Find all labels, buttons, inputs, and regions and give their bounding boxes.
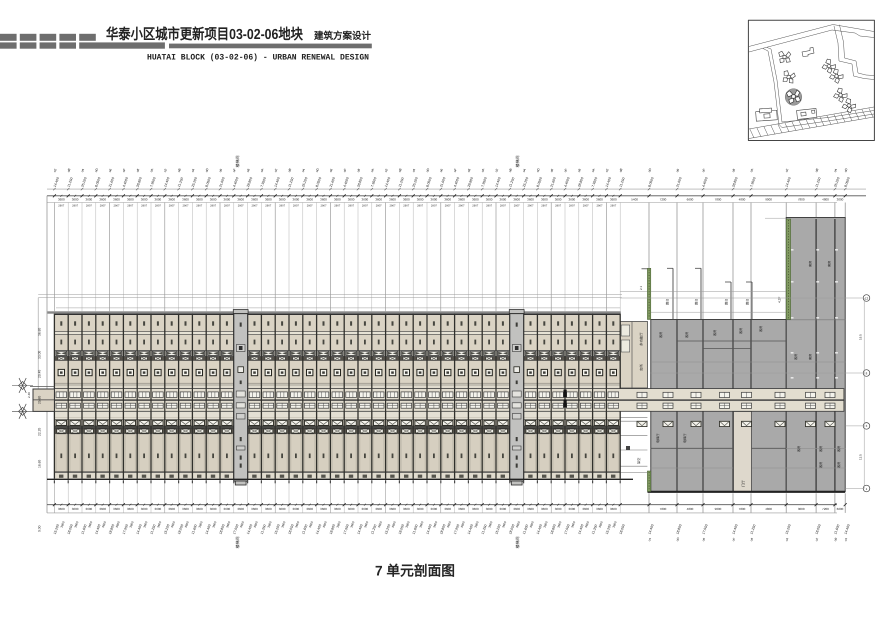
svg-text:7800: 7800	[739, 507, 746, 511]
svg-text:2.1: 2.1	[639, 285, 643, 290]
svg-text:3600: 3600	[141, 198, 148, 202]
svg-text:3600: 3600	[155, 507, 162, 511]
svg-text:3600: 3600	[610, 198, 617, 202]
svg-text:3600: 3600	[389, 198, 396, 202]
svg-text:3600: 3600	[444, 507, 451, 511]
svg-text:客房: 客房	[713, 330, 717, 336]
svg-text:3600: 3600	[362, 507, 369, 511]
svg-text:3600: 3600	[279, 198, 286, 202]
svg-text:3600: 3600	[320, 198, 327, 202]
svg-text:3600: 3600	[472, 198, 479, 202]
svg-text:客房: 客房	[837, 462, 841, 468]
svg-text:2907: 2907	[610, 205, 616, 208]
svg-text:7200: 7200	[660, 198, 667, 202]
svg-text:3600: 3600	[127, 507, 134, 511]
svg-text:2907: 2907	[86, 205, 92, 208]
svg-text:3600: 3600	[431, 507, 438, 511]
svg-text:3600: 3600	[265, 198, 272, 202]
svg-text:3600: 3600	[500, 198, 507, 202]
svg-text:2907: 2907	[72, 205, 78, 208]
svg-text:3600: 3600	[293, 507, 300, 511]
svg-text:2907: 2907	[307, 205, 313, 208]
svg-text:客房: 客房	[809, 354, 813, 360]
svg-text:4800: 4800	[687, 507, 694, 511]
svg-text:3600: 3600	[541, 198, 548, 202]
svg-text:7200: 7200	[822, 507, 829, 511]
svg-text:3600: 3600	[86, 198, 93, 202]
svg-text:2907: 2907	[141, 205, 147, 208]
svg-text:楼梯间: 楼梯间	[515, 156, 520, 168]
svg-text:2907: 2907	[238, 205, 244, 208]
svg-text:29.40: 29.40	[38, 370, 42, 378]
svg-text:3600: 3600	[362, 198, 369, 202]
svg-text:2907: 2907	[569, 205, 575, 208]
svg-text:3600: 3600	[72, 507, 79, 511]
svg-text:楼梯间: 楼梯间	[515, 537, 520, 549]
svg-text:3600: 3600	[458, 198, 465, 202]
svg-text:2907: 2907	[472, 205, 478, 208]
svg-text:3600: 3600	[375, 507, 382, 511]
svg-text:3600: 3600	[431, 198, 438, 202]
svg-text:3600: 3600	[486, 198, 493, 202]
svg-text:架空: 架空	[637, 458, 641, 464]
svg-text:2907: 2907	[114, 205, 120, 208]
svg-text:2907: 2907	[334, 205, 340, 208]
svg-text:2907: 2907	[445, 205, 451, 208]
svg-text:2907: 2907	[196, 205, 202, 208]
svg-text:3600: 3600	[513, 198, 520, 202]
svg-text:3600: 3600	[168, 198, 175, 202]
svg-text:建筑方案设计: 建筑方案设计	[313, 30, 371, 42]
svg-text:3600: 3600	[375, 198, 382, 202]
svg-text:2907: 2907	[321, 205, 327, 208]
svg-text:2907: 2907	[348, 205, 354, 208]
svg-text:3600: 3600	[113, 507, 120, 511]
svg-text:3600: 3600	[141, 507, 148, 511]
svg-text:多功能厅: 多功能厅	[640, 332, 644, 346]
svg-text:3600: 3600	[251, 507, 258, 511]
svg-text:3600: 3600	[417, 198, 424, 202]
svg-text:客房: 客房	[794, 354, 798, 360]
svg-text:7800: 7800	[798, 198, 805, 202]
svg-text:3600: 3600	[417, 507, 424, 511]
svg-text:客房: 客房	[685, 332, 689, 338]
svg-text:露台: 露台	[746, 299, 750, 305]
svg-text:3600: 3600	[444, 198, 451, 202]
svg-text:2.40: 2.40	[27, 392, 31, 398]
svg-text:门厅: 门厅	[742, 480, 746, 487]
svg-text:3600: 3600	[582, 507, 589, 511]
svg-text:25.80: 25.80	[38, 396, 42, 404]
svg-text:3600: 3600	[293, 198, 300, 202]
svg-text:2907: 2907	[459, 205, 465, 208]
svg-text:4.2F: 4.2F	[778, 297, 782, 303]
svg-text:2907: 2907	[362, 205, 368, 208]
svg-text:客房: 客房	[797, 446, 801, 452]
svg-text:3600: 3600	[458, 507, 465, 511]
svg-text:客房: 客房	[659, 332, 663, 338]
svg-text:3600: 3600	[569, 507, 576, 511]
svg-text:22.20: 22.20	[38, 428, 42, 436]
svg-text:3600: 3600	[555, 507, 562, 511]
svg-text:3600: 3600	[224, 507, 231, 511]
svg-text:0.00: 0.00	[38, 525, 42, 532]
svg-text:2907: 2907	[224, 205, 230, 208]
svg-text:3600: 3600	[210, 507, 217, 511]
svg-text:3600: 3600	[196, 507, 203, 511]
svg-text:客房: 客房	[819, 462, 823, 468]
svg-text:2907: 2907	[127, 205, 133, 208]
svg-text:3600: 3600	[58, 198, 65, 202]
svg-text:9000: 9000	[715, 507, 722, 511]
svg-text:楼梯间: 楼梯间	[235, 537, 240, 549]
svg-text:3600: 3600	[265, 507, 272, 511]
svg-text:2907: 2907	[58, 205, 64, 208]
svg-text:3600: 3600	[472, 507, 479, 511]
svg-text:7800: 7800	[715, 198, 722, 202]
svg-text:3600: 3600	[168, 507, 175, 511]
svg-text:3600: 3600	[127, 198, 134, 202]
svg-text:33.00: 33.00	[38, 351, 42, 359]
svg-text:客房: 客房	[828, 261, 832, 267]
svg-text:3600: 3600	[155, 198, 162, 202]
svg-text:18.60: 18.60	[38, 460, 42, 468]
svg-text:3600: 3600	[320, 507, 327, 511]
svg-text:3600: 3600	[334, 198, 341, 202]
svg-text:3600: 3600	[113, 198, 120, 202]
svg-text:3000: 3000	[837, 198, 844, 202]
svg-text:客房: 客房	[819, 446, 823, 452]
svg-text:电梯厅: 电梯厅	[656, 433, 660, 443]
svg-text:3600: 3600	[596, 198, 603, 202]
svg-text:12: 12	[865, 296, 869, 300]
svg-text:3600: 3600	[182, 198, 189, 202]
svg-text:2907: 2907	[390, 205, 396, 208]
svg-text:3600: 3600	[555, 198, 562, 202]
svg-text:3600: 3600	[596, 507, 603, 511]
svg-text:2907: 2907	[265, 205, 271, 208]
svg-text:2907: 2907	[514, 205, 520, 208]
svg-text:HUATAI BLOCK (03-02-06) - UR: HUATAI BLOCK (03-02-06) - URBAN RENEWAL …	[147, 52, 369, 62]
svg-text:2907: 2907	[431, 205, 437, 208]
svg-text:2907: 2907	[417, 205, 423, 208]
svg-text:7 单元剖面图: 7 单元剖面图	[375, 563, 455, 579]
svg-text:华泰小区城市更新项目03-02-06地块: 华泰小区城市更新项目03-02-06地块	[106, 26, 303, 43]
svg-text:2907: 2907	[541, 205, 547, 208]
svg-text:5400: 5400	[631, 198, 638, 202]
svg-text:3600: 3600	[86, 507, 93, 511]
svg-text:客房: 客房	[759, 326, 763, 332]
svg-text:4800: 4800	[765, 507, 772, 511]
svg-text:客房: 客房	[809, 261, 813, 267]
svg-text:2907: 2907	[100, 205, 106, 208]
svg-text:9000: 9000	[765, 198, 772, 202]
svg-text:3600: 3600	[610, 507, 617, 511]
svg-text:2907: 2907	[155, 205, 161, 208]
svg-text:3600: 3600	[182, 507, 189, 511]
svg-text:3600: 3600	[210, 198, 217, 202]
svg-text:3600: 3600	[196, 198, 203, 202]
svg-text:3600: 3600	[306, 198, 313, 202]
svg-text:2907: 2907	[500, 205, 506, 208]
svg-text:3000: 3000	[798, 507, 805, 511]
svg-text:3600: 3600	[58, 507, 65, 511]
svg-text:露台: 露台	[725, 299, 729, 305]
svg-text:4800: 4800	[822, 198, 829, 202]
svg-text:会所: 会所	[640, 364, 644, 371]
svg-text:3600: 3600	[500, 507, 507, 511]
svg-text:13.5: 13.5	[859, 454, 863, 460]
svg-text:3600: 3600	[527, 198, 534, 202]
svg-text:3600: 3600	[527, 507, 534, 511]
svg-text:2907: 2907	[169, 205, 175, 208]
svg-text:2907: 2907	[210, 205, 216, 208]
svg-text:3600: 3600	[513, 507, 520, 511]
svg-text:3600: 3600	[348, 507, 355, 511]
svg-text:36.60: 36.60	[38, 328, 42, 336]
svg-text:2907: 2907	[528, 205, 534, 208]
svg-text:客房: 客房	[739, 328, 743, 334]
svg-text:2907: 2907	[293, 205, 299, 208]
svg-text:2907: 2907	[252, 205, 258, 208]
svg-text:3600: 3600	[251, 198, 258, 202]
svg-text:3600: 3600	[403, 507, 410, 511]
svg-text:3600: 3600	[541, 507, 548, 511]
svg-text:3600: 3600	[99, 507, 106, 511]
svg-text:露台: 露台	[695, 299, 699, 305]
svg-text:6600: 6600	[837, 507, 844, 511]
svg-text:3600: 3600	[389, 507, 396, 511]
svg-text:3600: 3600	[237, 507, 244, 511]
svg-text:3600: 3600	[72, 198, 79, 202]
svg-text:3600: 3600	[403, 198, 410, 202]
svg-text:3600: 3600	[279, 507, 286, 511]
svg-text:7800: 7800	[660, 507, 667, 511]
svg-text:2907: 2907	[555, 205, 561, 208]
svg-text:2907: 2907	[597, 205, 603, 208]
svg-text:4800: 4800	[739, 198, 746, 202]
svg-text:楼梯间: 楼梯间	[235, 156, 240, 168]
svg-text:2907: 2907	[376, 205, 382, 208]
svg-text:3600: 3600	[99, 198, 106, 202]
svg-text:2907: 2907	[583, 205, 589, 208]
svg-text:露台: 露台	[666, 299, 670, 305]
svg-text:2907: 2907	[183, 205, 189, 208]
svg-text:3600: 3600	[334, 507, 341, 511]
svg-text:2907: 2907	[486, 205, 492, 208]
svg-text:客房: 客房	[837, 446, 841, 452]
svg-text:3600: 3600	[237, 198, 244, 202]
svg-text:3600: 3600	[486, 507, 493, 511]
svg-text:2907: 2907	[279, 205, 285, 208]
svg-text:19.5: 19.5	[859, 334, 863, 340]
svg-text:电梯厅: 电梯厅	[683, 433, 687, 443]
svg-text:3600: 3600	[224, 198, 231, 202]
svg-text:2907: 2907	[403, 205, 409, 208]
svg-text:3600: 3600	[348, 198, 355, 202]
svg-text:3600: 3600	[569, 198, 576, 202]
svg-text:6600: 6600	[687, 198, 694, 202]
svg-text:3600: 3600	[306, 507, 313, 511]
svg-text:3600: 3600	[582, 198, 589, 202]
